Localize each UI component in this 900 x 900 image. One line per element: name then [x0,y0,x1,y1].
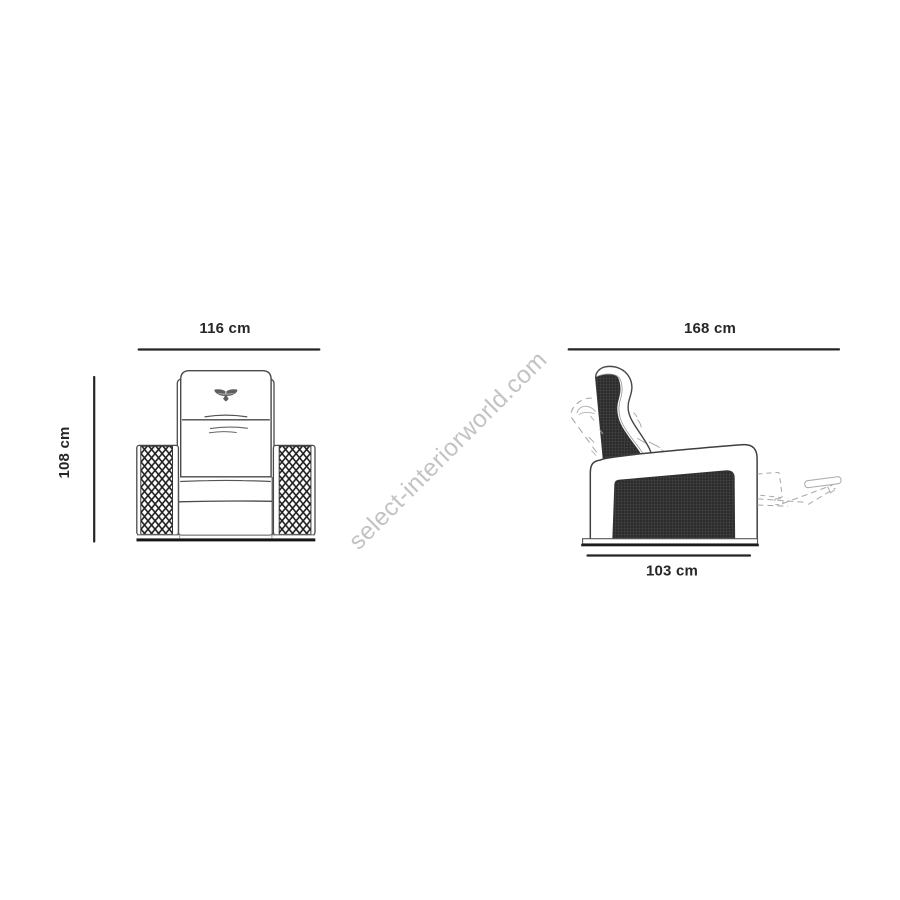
svg-text:168 cm: 168 cm [684,320,736,337]
svg-text:116 cm: 116 cm [199,320,250,337]
svg-text:select-interiorworld.com: select-interiorworld.com [344,346,553,555]
svg-text:103 cm: 103 cm [646,563,698,580]
svg-text:108 cm: 108 cm [56,426,73,478]
